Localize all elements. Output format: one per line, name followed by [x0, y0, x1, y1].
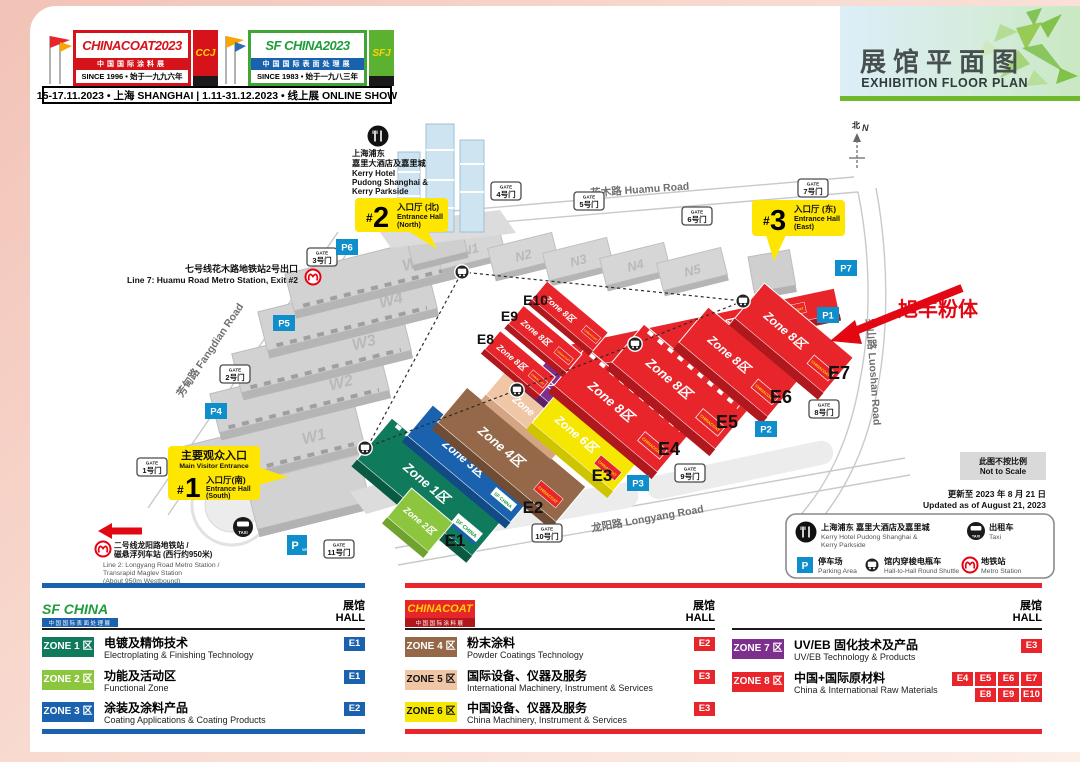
hall-header-en: HALL — [686, 612, 715, 624]
zone4-cn: 粉末涂料 — [467, 637, 694, 650]
hall-badge: E3 — [694, 670, 715, 684]
zone7-badge: ZONE 7 区 — [732, 639, 784, 659]
zone3-cn: 涂装及涂料产品 — [104, 702, 344, 715]
zone4-badge: ZONE 4 区 — [405, 637, 457, 657]
table-row: ZONE 8 区 中国+国际原材料China & International R… — [732, 672, 1042, 696]
zone7-cn: UV/EB 固化技术及产品 — [794, 639, 1021, 652]
chinacoat-table-logo-tagline: 中国国际涂料展 — [405, 618, 475, 627]
hall-badge: E5 — [975, 672, 996, 686]
sfchina-flags-icon — [220, 32, 246, 86]
hall-badge: E2 — [694, 637, 715, 651]
table-row: ZONE 6 区 中国设备、仪器及服务China Machinery, Inst… — [405, 702, 715, 726]
chinacoat-bottom-rule — [405, 729, 1042, 734]
hall-header-cn: 展馆 — [1020, 600, 1042, 612]
table-row: ZONE 5 区 国际设备、仪器及服务International Machine… — [405, 670, 715, 694]
chinacoat-zone-table: CHINACOAT 中国国际涂料展 展馆HALL ZONE 4 区 粉末涂料Po… — [405, 598, 715, 748]
table-row: ZONE 2 区 功能及活动区Functional Zone E1 — [42, 670, 365, 694]
zone6-cn: 中国设备、仪器及服务 — [467, 702, 694, 715]
zone1-cn: 电镀及精饰技术 — [104, 637, 344, 650]
page-title-cn: 展馆平面图 — [860, 42, 1025, 79]
hall-badge: E3 — [1021, 639, 1042, 653]
hall-badge: E1 — [344, 637, 365, 651]
sfj-badge-strip — [369, 76, 394, 86]
page-title-en: EXHIBITION FLOOR PLAN — [861, 76, 1028, 90]
zone5-en: International Machinery, Instrument & Se… — [467, 683, 694, 693]
event-dates: 15-17.11.2023 • 上海 SHANGHAI | 1.11-31.12… — [42, 86, 392, 104]
banner-underline — [840, 96, 1080, 101]
hall-header-cn: 展馆 — [693, 600, 715, 612]
sfchina-table-logo-name: SF CHINA — [42, 600, 118, 618]
hall-header: 展馆HALL — [336, 600, 365, 624]
zone6-badge: ZONE 6 区 — [405, 702, 457, 722]
chinacoat-logo: CHINACOAT2023 中国国际涂料展 SINCE 1996 • 始于一九九… — [73, 30, 191, 86]
chinacoat-name: CHINACOAT — [82, 38, 155, 53]
zone8-badge: ZONE 8 区 — [732, 672, 784, 692]
sfchina-tagline: 中国国际表面处理展 — [251, 58, 364, 70]
chinacoat-table-logo-name: CHINACOAT — [405, 600, 475, 618]
chinacoat-top-rule — [405, 583, 1042, 588]
hall-badge: E1 — [344, 670, 365, 684]
hall-badge: E3 — [694, 702, 715, 716]
hall-header-cn: 展馆 — [343, 600, 365, 612]
hall-header-en: HALL — [336, 612, 365, 624]
zone2-cn: 功能及活动区 — [104, 670, 344, 683]
table-row: ZONE 1 区 电镀及精饰技术Electroplating & Finishi… — [42, 637, 365, 661]
chinacoat-year: 2023 — [155, 38, 182, 53]
sfchina-logo: SF CHINA2023 中国国际表面处理展 SINCE 1983 • 始于一九… — [248, 30, 367, 86]
hall-badge: E2 — [344, 702, 365, 716]
sfchina-since: SINCE 1983 • 始于一九八三年 — [251, 70, 364, 83]
hall-header: 展馆HALL — [686, 600, 715, 624]
hall-badge: E6 — [998, 672, 1019, 686]
sfchina-top-rule — [42, 583, 365, 588]
hall-header: 展馆HALL — [1013, 600, 1042, 624]
zone5-cn: 国际设备、仪器及服务 — [467, 670, 694, 683]
chinacoat-table-logo: CHINACOAT 中国国际涂料展 — [405, 600, 475, 627]
zone5-badge: ZONE 5 区 — [405, 670, 457, 690]
sfchina-table-logo-tagline: 中国国际表面处理展 — [42, 618, 118, 627]
hall-badge: E9 — [998, 688, 1019, 702]
sfj-badge-label: SFJ — [369, 30, 394, 76]
hall-badge: E8 — [975, 688, 996, 702]
table-row: ZONE 4 区 粉末涂料Powder Coatings Technology … — [405, 637, 715, 661]
zone3-badge: ZONE 3 区 — [42, 702, 94, 722]
zone4-en: Powder Coatings Technology — [467, 650, 694, 660]
hall-badge: E7 — [1021, 672, 1042, 686]
ccj-badge: CCJ — [193, 30, 218, 86]
zone7-en: UV/EB Technology & Products — [794, 652, 1021, 662]
hall-badge: E4 — [952, 672, 973, 686]
header-underline — [732, 628, 1042, 630]
zone3-en: Coating Applications & Coating Products — [104, 715, 344, 725]
zone1-badge: ZONE 1 区 — [42, 637, 94, 657]
table-row: ZONE 7 区 UV/EB 固化技术及产品UV/EB Technology &… — [732, 639, 1042, 663]
sfchina-bottom-rule — [42, 729, 365, 734]
chinacoat-tagline: 中国国际涂料展 — [76, 58, 188, 70]
uv-zone-table: 展馆HALL ZONE 7 区 UV/EB 固化技术及产品UV/EB Techn… — [732, 598, 1042, 748]
chinacoat-flags-icon — [44, 32, 72, 86]
sfj-badge: SFJ — [369, 30, 394, 86]
zone6-en: China Machinery, Instrument & Services — [467, 715, 694, 725]
sfchina-year: 2023 — [323, 38, 350, 53]
sfchina-table-logo: SF CHINA 中国国际表面处理展 — [42, 600, 118, 627]
zone2-badge: ZONE 2 区 — [42, 670, 94, 690]
zone2-en: Functional Zone — [104, 683, 344, 693]
ccj-badge-label: CCJ — [193, 30, 218, 76]
hall-badge: E10 — [1021, 688, 1042, 702]
sfchina-zone-table: SF CHINA 中国国际表面处理展 展馆HALL ZONE 1 区 电镀及精饰… — [42, 598, 365, 748]
hall-header-en: HALL — [1013, 612, 1042, 624]
table-row: ZONE 3 区 涂装及涂料产品Coating Applications & C… — [42, 702, 365, 726]
zone8-cn: 中国+国际原材料 — [794, 672, 952, 685]
header-underline — [405, 628, 715, 630]
zone1-en: Electroplating & Finishing Technology — [104, 650, 344, 660]
sfchina-name: SF CHINA — [265, 38, 322, 53]
header-underline — [42, 628, 365, 630]
zone8-en: China & International Raw Materials — [794, 685, 952, 695]
chinacoat-since: SINCE 1996 • 始于一九九六年 — [76, 70, 188, 83]
title-banner: 展馆平面图 EXHIBITION FLOOR PLAN — [840, 6, 1080, 101]
ccj-badge-strip — [193, 76, 218, 86]
